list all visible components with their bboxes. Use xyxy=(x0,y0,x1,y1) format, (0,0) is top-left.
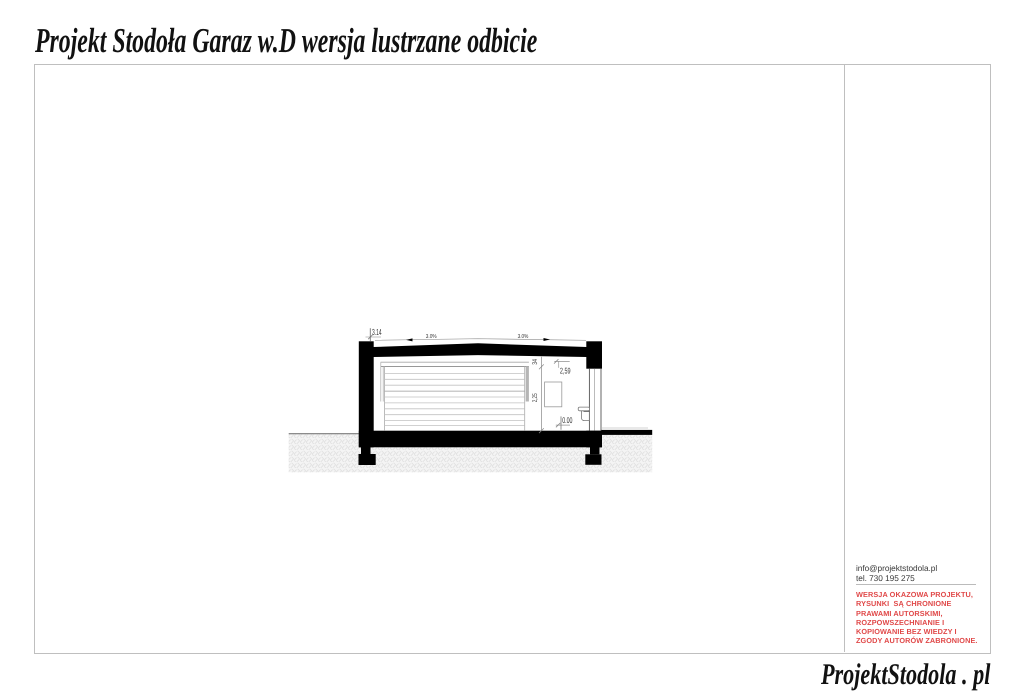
svg-text:3.0%: 3.0% xyxy=(518,333,529,340)
svg-text:3.0%: 3.0% xyxy=(426,333,437,340)
svg-text:2,25: 2,25 xyxy=(532,393,539,402)
svg-text:2,59: 2,59 xyxy=(560,366,571,376)
svg-text:0.00: 0.00 xyxy=(562,415,573,425)
svg-text:34: 34 xyxy=(532,359,539,365)
svg-text:3.14: 3.14 xyxy=(372,327,382,337)
